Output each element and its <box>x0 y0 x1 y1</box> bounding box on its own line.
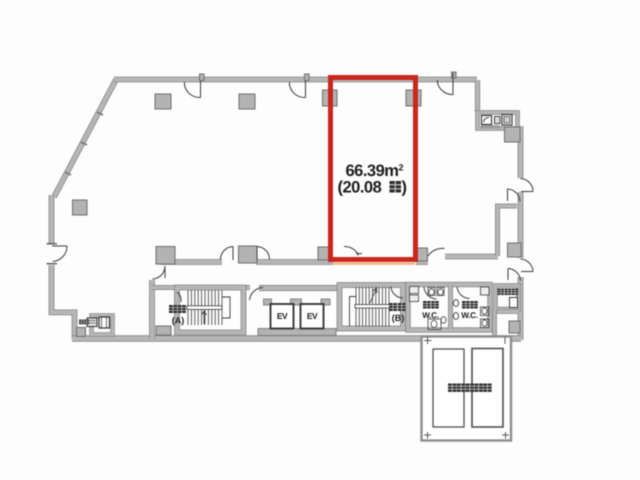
svg-text:66.39m2: 66.39m2 <box>346 162 404 180</box>
svg-text:EV: EV <box>307 311 318 321</box>
svg-text:): ) <box>402 179 408 197</box>
svg-text:EV: EV <box>277 311 288 321</box>
svg-text:(20.08: (20.08 <box>338 179 382 197</box>
svg-text:W.C.: W.C. <box>422 311 439 320</box>
svg-text:(B): (B) <box>392 313 405 323</box>
svg-text:W.C.: W.C. <box>461 311 478 320</box>
svg-text:(A): (A) <box>172 316 185 326</box>
